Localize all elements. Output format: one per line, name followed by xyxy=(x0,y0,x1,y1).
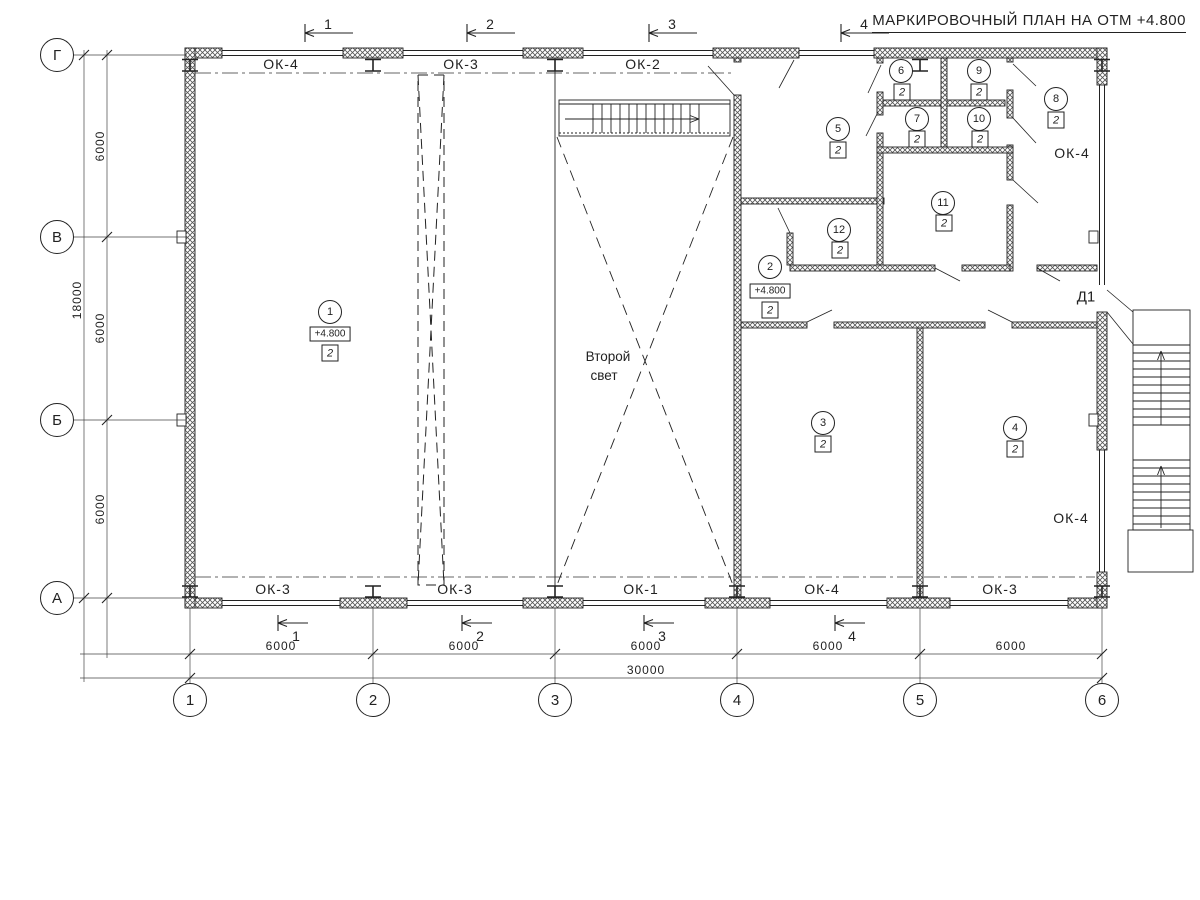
axis-col-5: 5 xyxy=(903,683,937,717)
room-6-number: 6 xyxy=(889,59,913,83)
section-mark-1-bottom: 1 xyxy=(292,628,300,644)
axis-row-v: В xyxy=(40,220,74,254)
floor-plan: МАРКИРОВОЧНЫЙ ПЛАН НА ОТМ +4.800 ОК-4 ОК… xyxy=(0,0,1200,900)
room-1-number: 1 xyxy=(318,300,342,324)
dim-left-18000: 18000 xyxy=(70,281,84,319)
drawing-title: МАРКИРОВОЧНЫЙ ПЛАН НА ОТМ +4.800 xyxy=(872,12,1186,33)
dim-bottom-6000-2: 6000 xyxy=(449,639,480,653)
room-7-type: 2 xyxy=(909,131,926,148)
room-4-number: 4 xyxy=(1003,416,1027,440)
axis-col-2: 2 xyxy=(356,683,390,717)
dim-left-6000-1: 6000 xyxy=(93,131,107,162)
second-light-label-line2: свет xyxy=(590,367,617,385)
second-light-label-line1: Второй xyxy=(586,348,631,366)
dim-bottom-6000-5: 6000 xyxy=(996,639,1027,653)
dim-bottom-6000-3: 6000 xyxy=(631,639,662,653)
window-label-right-lower: ОК-4 xyxy=(1053,510,1089,526)
axis-row-b: Б xyxy=(40,403,74,437)
room-9-number: 9 xyxy=(967,59,991,83)
room-3-number: 3 xyxy=(811,411,835,435)
second-light-zone xyxy=(555,58,733,598)
room-4-type: 2 xyxy=(1007,441,1024,458)
room-5-number: 5 xyxy=(826,117,850,141)
window-label-top-ok2: ОК-2 xyxy=(625,56,661,72)
window-label-top-ok3: ОК-3 xyxy=(443,56,479,72)
room-11-number: 11 xyxy=(931,191,955,215)
section-mark-3-top: 3 xyxy=(668,16,676,32)
window-label-right-upper: ОК-4 xyxy=(1054,145,1090,161)
section-mark-3-bottom: 3 xyxy=(658,628,666,644)
room-7-number: 7 xyxy=(905,107,929,131)
room-12-number: 12 xyxy=(827,218,851,242)
exterior-stair xyxy=(1128,310,1193,572)
dim-bottom-6000-4: 6000 xyxy=(813,639,844,653)
section-mark-2-top: 2 xyxy=(486,16,494,32)
room-2-elevation: +4.800 xyxy=(750,284,791,299)
section-mark-2-bottom: 2 xyxy=(476,628,484,644)
axis-col-6: 6 xyxy=(1085,683,1119,717)
room-1-type: 2 xyxy=(322,345,339,362)
window-label-bottom-4: ОК-4 xyxy=(804,581,840,597)
room-6-type: 2 xyxy=(894,84,911,101)
room-10-type: 2 xyxy=(972,131,989,148)
window-label-bottom-2: ОК-3 xyxy=(437,581,473,597)
axis-row-g: Г xyxy=(40,38,74,72)
room-3-type: 2 xyxy=(815,436,832,453)
section-mark-4-top: 4 xyxy=(860,16,868,32)
axis-row-a: А xyxy=(40,581,74,615)
axis-col-3: 3 xyxy=(538,683,572,717)
axis-col-1: 1 xyxy=(173,683,207,717)
room-1-elevation: +4.800 xyxy=(310,327,351,342)
dim-bottom-30000: 30000 xyxy=(627,663,665,677)
room-2-type: 2 xyxy=(762,302,779,319)
room-8-number: 8 xyxy=(1044,87,1068,111)
dim-left-6000-3: 6000 xyxy=(93,494,107,525)
room-11-type: 2 xyxy=(936,215,953,232)
room-12-type: 2 xyxy=(832,242,849,259)
room-5-type: 2 xyxy=(830,142,847,159)
window-label-bottom-3: ОК-1 xyxy=(623,581,659,597)
room-2-number: 2 xyxy=(758,255,782,279)
window-label-bottom-1: ОК-3 xyxy=(255,581,291,597)
dashed-strip xyxy=(418,75,444,585)
section-mark-1-top: 1 xyxy=(324,16,332,32)
window-label-top-ok4: ОК-4 xyxy=(263,56,299,72)
axis-col-4: 4 xyxy=(720,683,754,717)
room-8-type: 2 xyxy=(1048,112,1065,129)
section-mark-4-bottom: 4 xyxy=(848,628,856,644)
door-label-d1: Д1 xyxy=(1077,289,1096,306)
window-label-bottom-5: ОК-3 xyxy=(982,581,1018,597)
dim-left-6000-2: 6000 xyxy=(93,313,107,344)
room-9-type: 2 xyxy=(971,84,988,101)
room-10-number: 10 xyxy=(967,107,991,131)
interior-stair xyxy=(559,100,730,136)
